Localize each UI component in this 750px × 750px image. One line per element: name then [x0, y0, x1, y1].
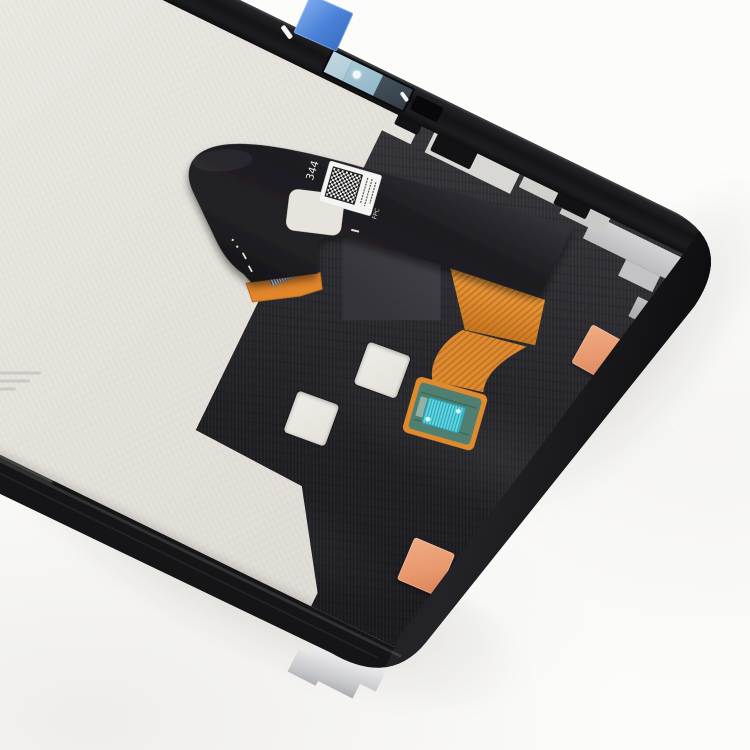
etched-part-markings	[0, 367, 55, 407]
camera-lens-dot	[352, 69, 363, 80]
product-photo-stage: 344 FPC	[0, 0, 750, 750]
lcd-assembly: 344 FPC	[0, 0, 737, 738]
